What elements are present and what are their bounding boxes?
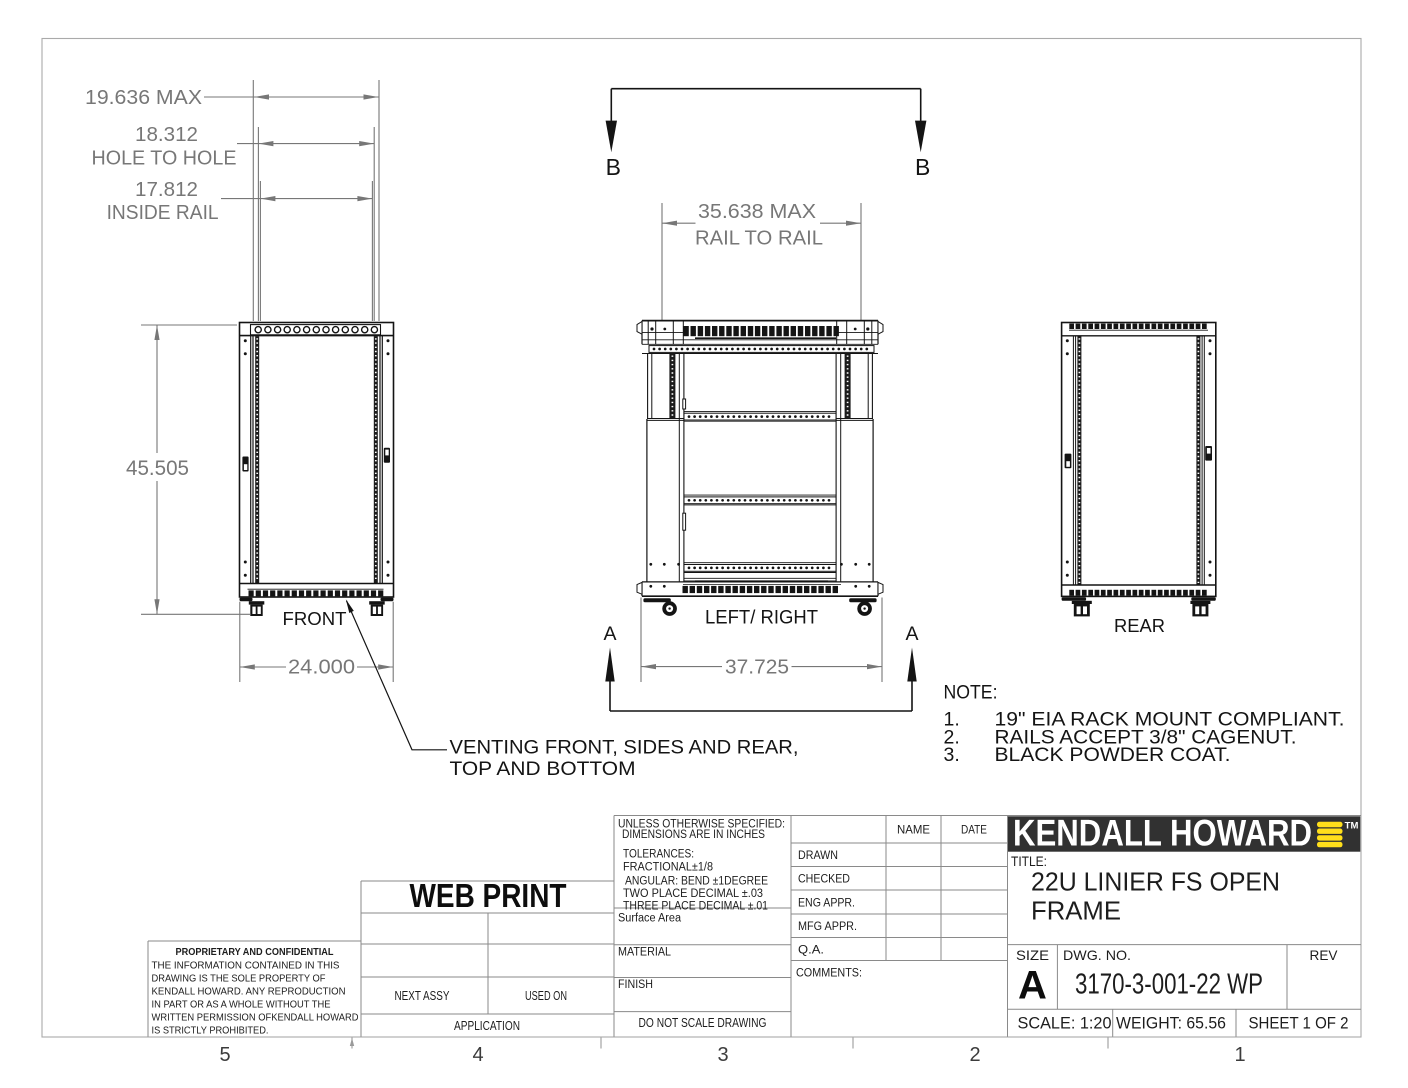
svg-text:FRACTIONAL±1/8: FRACTIONAL±1/8 (623, 862, 713, 874)
svg-text:35.638 MAX: 35.638 MAX (698, 200, 816, 223)
svg-text:A: A (905, 623, 918, 645)
svg-text:SIZE: SIZE (1016, 947, 1049, 963)
svg-text:DIMENSIONS ARE IN INCHES: DIMENSIONS ARE IN INCHES (622, 829, 765, 841)
svg-text:18.312: 18.312 (135, 123, 198, 146)
svg-text:NAME: NAME (897, 823, 930, 837)
svg-text:IS STRICTLY PROHIBITED.: IS STRICTLY PROHIBITED. (152, 1026, 269, 1037)
svg-text:DO NOT SCALE DRAWING: DO NOT SCALE DRAWING (639, 1016, 767, 1030)
svg-text:1: 1 (1234, 1044, 1245, 1066)
svg-text:COMMENTS:: COMMENTS: (796, 966, 862, 980)
svg-text:INSIDE RAIL: INSIDE RAIL (107, 201, 219, 224)
svg-text:WEB PRINT: WEB PRINT (410, 877, 567, 914)
svg-text:45.505: 45.505 (126, 457, 189, 480)
svg-text:A: A (603, 623, 616, 645)
svg-text:Surface Area: Surface Area (618, 913, 682, 925)
svg-text:3.: 3. (944, 744, 960, 766)
svg-text:FINISH: FINISH (618, 977, 653, 991)
svg-text:A: A (1018, 964, 1047, 1008)
svg-text:DATE: DATE (961, 823, 987, 837)
svg-text:24.000: 24.000 (288, 656, 355, 679)
svg-text:ENG APPR.: ENG APPR. (798, 896, 855, 910)
svg-text:TM: TM (1345, 821, 1359, 832)
svg-text:3: 3 (717, 1044, 728, 1066)
svg-text:REAR: REAR (1114, 615, 1165, 636)
svg-text:NOTE:: NOTE: (944, 682, 998, 704)
svg-text:SCALE: 1:20: SCALE: 1:20 (1018, 1014, 1112, 1033)
svg-text:19.636 MAX: 19.636 MAX (85, 86, 202, 109)
svg-text:22U LINIER FS OPEN: 22U LINIER FS OPEN (1031, 867, 1280, 897)
svg-text:LEFT/ RIGHT: LEFT/ RIGHT (705, 607, 818, 629)
svg-text:CHECKED: CHECKED (798, 872, 850, 886)
svg-text:17.812: 17.812 (135, 178, 198, 201)
svg-text:SHEET 1 OF 2: SHEET 1 OF 2 (1249, 1014, 1349, 1033)
svg-text:FRONT: FRONT (283, 608, 347, 629)
svg-text:ANGULAR: BEND ±1DEGREE: ANGULAR: BEND ±1DEGREE (625, 876, 768, 888)
svg-text:REV: REV (1310, 947, 1339, 963)
svg-text:DRAWN: DRAWN (798, 848, 838, 862)
svg-text:4: 4 (472, 1044, 483, 1066)
svg-text:PROPRIETARY AND CONFIDENTIAL: PROPRIETARY AND CONFIDENTIAL (176, 946, 335, 958)
svg-text:MATERIAL: MATERIAL (618, 945, 671, 959)
svg-text:FRAME: FRAME (1031, 896, 1121, 926)
svg-text:RAIL TO RAIL: RAIL TO RAIL (695, 227, 823, 250)
svg-text:TOLERANCES:: TOLERANCES: (623, 849, 694, 861)
svg-text:BLACK POWDER COAT.: BLACK POWDER COAT. (995, 744, 1231, 766)
svg-text:5: 5 (219, 1044, 230, 1066)
svg-text:TWO PLACE DECIMAL ±.03: TWO PLACE DECIMAL ±.03 (623, 888, 763, 900)
svg-text:DWG. NO.: DWG. NO. (1063, 947, 1131, 963)
svg-text:DRAWING IS THE SOLE PROPERTY O: DRAWING IS THE SOLE PROPERTY OF (152, 973, 326, 984)
svg-text:USED ON: USED ON (525, 989, 567, 1003)
svg-text:WEIGHT: 65.56: WEIGHT: 65.56 (1116, 1014, 1226, 1033)
svg-text:NEXT ASSY: NEXT ASSY (395, 989, 451, 1003)
svg-text:TOP AND BOTTOM: TOP AND BOTTOM (450, 758, 636, 780)
svg-text:THE INFORMATION CONTAINED IN T: THE INFORMATION CONTAINED IN THIS (152, 960, 340, 971)
svg-text:IN PART OR AS A WHOLE WITHOUT: IN PART OR AS A WHOLE WITHOUT THE (152, 999, 331, 1010)
svg-text:KENDALL HOWARD. ANY REPRODUCT: KENDALL HOWARD. ANY REPRODUCTION (152, 986, 346, 997)
svg-text:37.725: 37.725 (725, 656, 789, 679)
svg-text:2: 2 (969, 1044, 980, 1066)
svg-text:3170-3-001-22 WP: 3170-3-001-22 WP (1075, 969, 1263, 1001)
svg-text:THREE PLACE DECIMAL ±.01: THREE PLACE DECIMAL ±.01 (623, 901, 768, 913)
svg-text:VENTING FRONT, SIDES AND REAR,: VENTING FRONT, SIDES AND REAR, (450, 737, 799, 759)
svg-text:MFG APPR.: MFG APPR. (798, 919, 857, 933)
svg-text:B: B (606, 154, 621, 180)
svg-text:Q.A.: Q.A. (798, 943, 824, 957)
svg-text:KENDALL HOWARD: KENDALL HOWARD (1013, 813, 1312, 854)
svg-text:B: B (915, 154, 930, 180)
svg-text:WRITTEN PERMISSION OFKENDALL H: WRITTEN PERMISSION OFKENDALL HOWARD (152, 1013, 359, 1024)
svg-text:HOLE TO HOLE: HOLE TO HOLE (92, 147, 237, 170)
svg-text:APPLICATION: APPLICATION (454, 1019, 520, 1033)
